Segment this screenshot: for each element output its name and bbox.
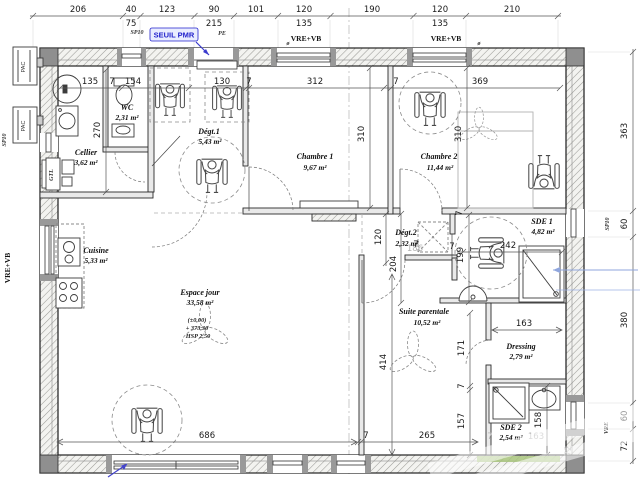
room-espace-jour: Espace jour	[179, 288, 220, 297]
dim-158: 158	[534, 412, 544, 428]
dim-top-90: 90	[209, 5, 220, 15]
desk	[300, 201, 358, 208]
dim-7a: 7	[109, 77, 114, 87]
dim-top-190: 190	[364, 5, 380, 15]
dim-7c: 7	[393, 77, 398, 87]
room-degt1-area: 5,43 m²	[198, 137, 222, 146]
dim-top-215: 215	[206, 19, 222, 29]
room-wc: WC	[121, 103, 134, 112]
room-chambre2-area: 11,44 m²	[427, 163, 454, 172]
dim-130: 130	[214, 77, 230, 87]
dim-top-135a: 135	[296, 19, 312, 29]
wheelchair-icon	[156, 84, 185, 116]
pmr-circle-sejour	[112, 385, 182, 455]
opening-labels: SP10 PE VRE+VB ø VRE+VB ø SP10 VRE+VB SP…	[2, 30, 611, 434]
label-pe: PE	[218, 31, 226, 37]
label-gtl: GTL	[49, 169, 55, 181]
label-diam-2: ø	[477, 41, 482, 47]
label-vre-vb-1: VRE+VB	[291, 34, 322, 43]
dim-bottom-686: 686	[199, 431, 215, 441]
shower-sde1	[519, 246, 564, 302]
room-suite-parentale: Suite parentale	[399, 307, 449, 316]
room-espace-jour-area: 33,58 m²	[186, 298, 215, 307]
dim-312: 312	[307, 77, 323, 87]
dim-right-380: 380	[620, 312, 630, 328]
dim-top-101: 101	[248, 5, 264, 15]
dim-top-120b: 120	[432, 5, 448, 15]
washbasin	[529, 386, 560, 410]
dim-120: 120	[374, 229, 384, 245]
fan-icon	[459, 107, 499, 142]
pmr-circle-chambre2	[399, 72, 461, 134]
room-suite-parentale-area: 10,52 m²	[414, 318, 442, 327]
seuil-pmr-label: SEUIL PMR	[154, 31, 195, 40]
label-pac-2: PAC	[21, 121, 27, 132]
dim-270: 270	[93, 122, 103, 138]
dim-7f: 7	[455, 210, 465, 215]
label-vre-vb-2: VRE+VB	[431, 34, 462, 43]
wheelchair-icon	[213, 86, 242, 118]
level-hsp: HSP 2,50	[185, 333, 211, 340]
dim-bottom-265: 265	[419, 431, 435, 441]
pac-unit-1	[13, 47, 43, 85]
level-altitude: + 373,30	[186, 325, 209, 332]
pac-unit-2	[13, 107, 43, 143]
room-sde1-area: 4,82 m²	[530, 227, 555, 236]
dim-154: 154	[125, 77, 141, 87]
dim-7d: 7	[449, 242, 454, 252]
room-sde2: SDE 2	[500, 423, 522, 432]
floor-plan-canvas: 206 40 123 90 101 120 190 120 210 75 215…	[0, 0, 640, 480]
room-dressing-area: 2,79 m²	[508, 352, 533, 361]
label-pac-1: PAC	[21, 62, 27, 73]
fan-icon	[388, 331, 439, 375]
label-sp10-top: SP10	[130, 30, 143, 36]
pmr-circle-degt1	[179, 137, 245, 203]
label-sp10-right: SP10	[605, 217, 611, 230]
wheelchair-icon	[132, 408, 162, 441]
wheelchair-icon	[415, 92, 445, 125]
room-chambre1-area: 9,67 m²	[303, 163, 327, 172]
dim-242: 242	[500, 241, 516, 251]
label-vre-vb-left: VRE+VB	[3, 253, 12, 284]
dim-bottom-7: 7	[363, 431, 368, 441]
dim-369: 369	[472, 77, 488, 87]
dim-top-120a: 120	[296, 5, 312, 15]
wheelchair-icon	[471, 238, 504, 268]
dim-204: 204	[389, 256, 399, 272]
dim-right-363: 363	[620, 123, 630, 139]
level-niveau: (±0,00)	[188, 317, 207, 324]
room-cuisine: Cuisine	[83, 246, 109, 255]
dim-top-123: 123	[159, 5, 175, 15]
dim-310b: 310	[454, 126, 464, 142]
dim-top-206: 206	[70, 5, 86, 15]
room-cellier: Cellier	[75, 148, 98, 157]
dim-7b: 7	[246, 77, 251, 87]
room-sde1: SDE 1	[531, 217, 553, 226]
dim-right-60a: 60	[620, 219, 630, 230]
dimensions-top: 206 40 123 90 101 120 190 120 210 75 215…	[70, 5, 520, 29]
dim-163: 163	[516, 319, 532, 329]
dim-157: 157	[457, 413, 467, 429]
dim-top-210: 210	[504, 5, 520, 15]
dimensions-bottom: 686 7 265	[199, 431, 435, 441]
label-sp10-left: SP10	[2, 133, 8, 146]
dim-7g: 7	[457, 383, 467, 388]
room-degt2-area: 2,32 m²	[394, 239, 419, 248]
dim-top-75: 75	[126, 19, 137, 29]
room-labels: WC 2,31 m² Cellier 3,62 m² Cuisine 5,33 …	[73, 103, 555, 442]
room-wc-area: 2,31 m²	[114, 113, 139, 122]
kitchen-counter	[56, 224, 84, 308]
room-cellier-area: 3,62 m²	[73, 158, 98, 167]
dim-414: 414	[379, 354, 389, 370]
wheelchair-icon	[197, 159, 227, 192]
dim-top-135b: 135	[432, 19, 448, 29]
room-cuisine-area: 5,33 m²	[84, 256, 108, 265]
washing-machine	[56, 106, 78, 136]
dim-310a: 310	[357, 126, 367, 142]
shower-sde2	[489, 383, 529, 423]
dim-gray-7: 7	[487, 432, 492, 442]
dim-135: 135	[82, 77, 98, 87]
room-chambre2: Chambre 2	[421, 152, 458, 161]
dimensions-right: 363 60 380 60 72	[620, 123, 630, 452]
room-degt2: Dégt.2	[394, 228, 417, 237]
dim-199: 199	[456, 247, 466, 263]
bed	[458, 112, 533, 208]
room-degt1: Dégt.1	[197, 127, 220, 136]
room-dressing: Dressing	[505, 342, 535, 351]
floor-plan: 206 40 123 90 101 120 190 120 210 75 215…	[0, 0, 640, 480]
dim-171: 171	[457, 340, 467, 356]
dim-top-40: 40	[126, 5, 137, 15]
furniture	[13, 47, 564, 423]
room-chambre1: Chambre 1	[297, 152, 334, 161]
